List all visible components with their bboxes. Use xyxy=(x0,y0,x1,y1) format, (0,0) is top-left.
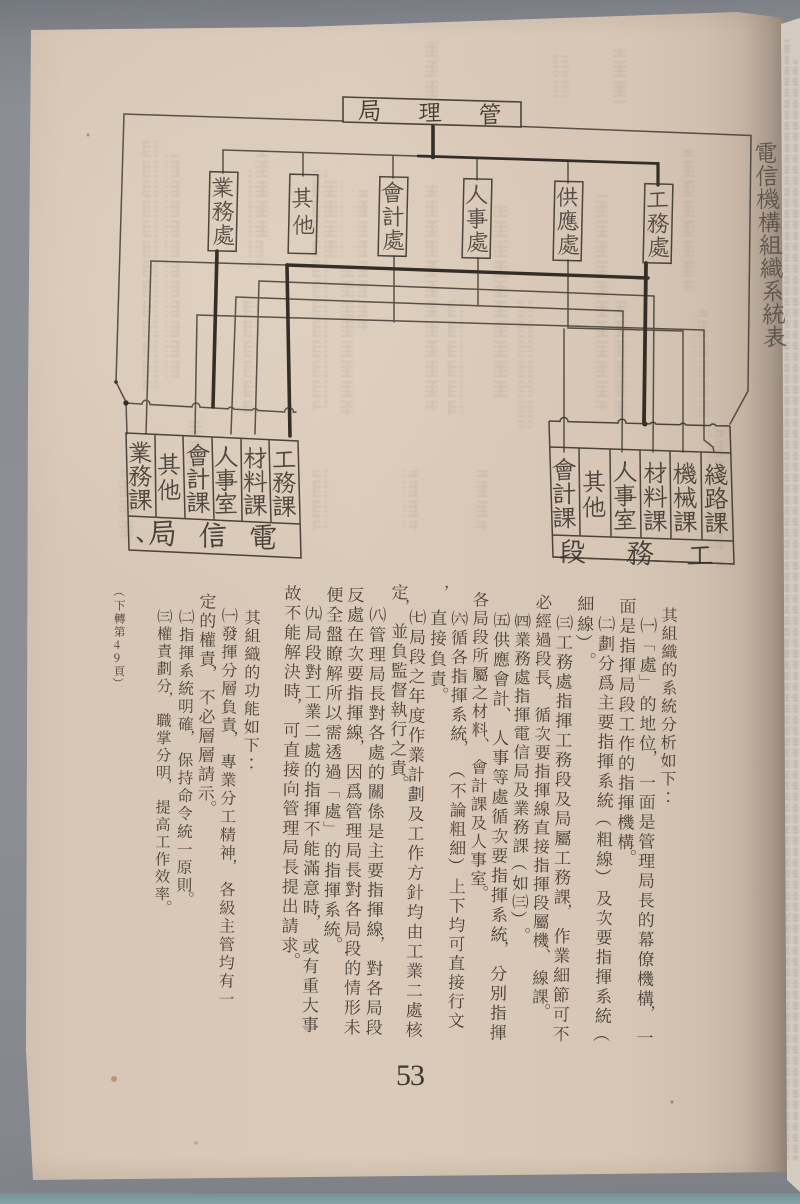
svg-text:53: 53 xyxy=(396,1059,424,1092)
